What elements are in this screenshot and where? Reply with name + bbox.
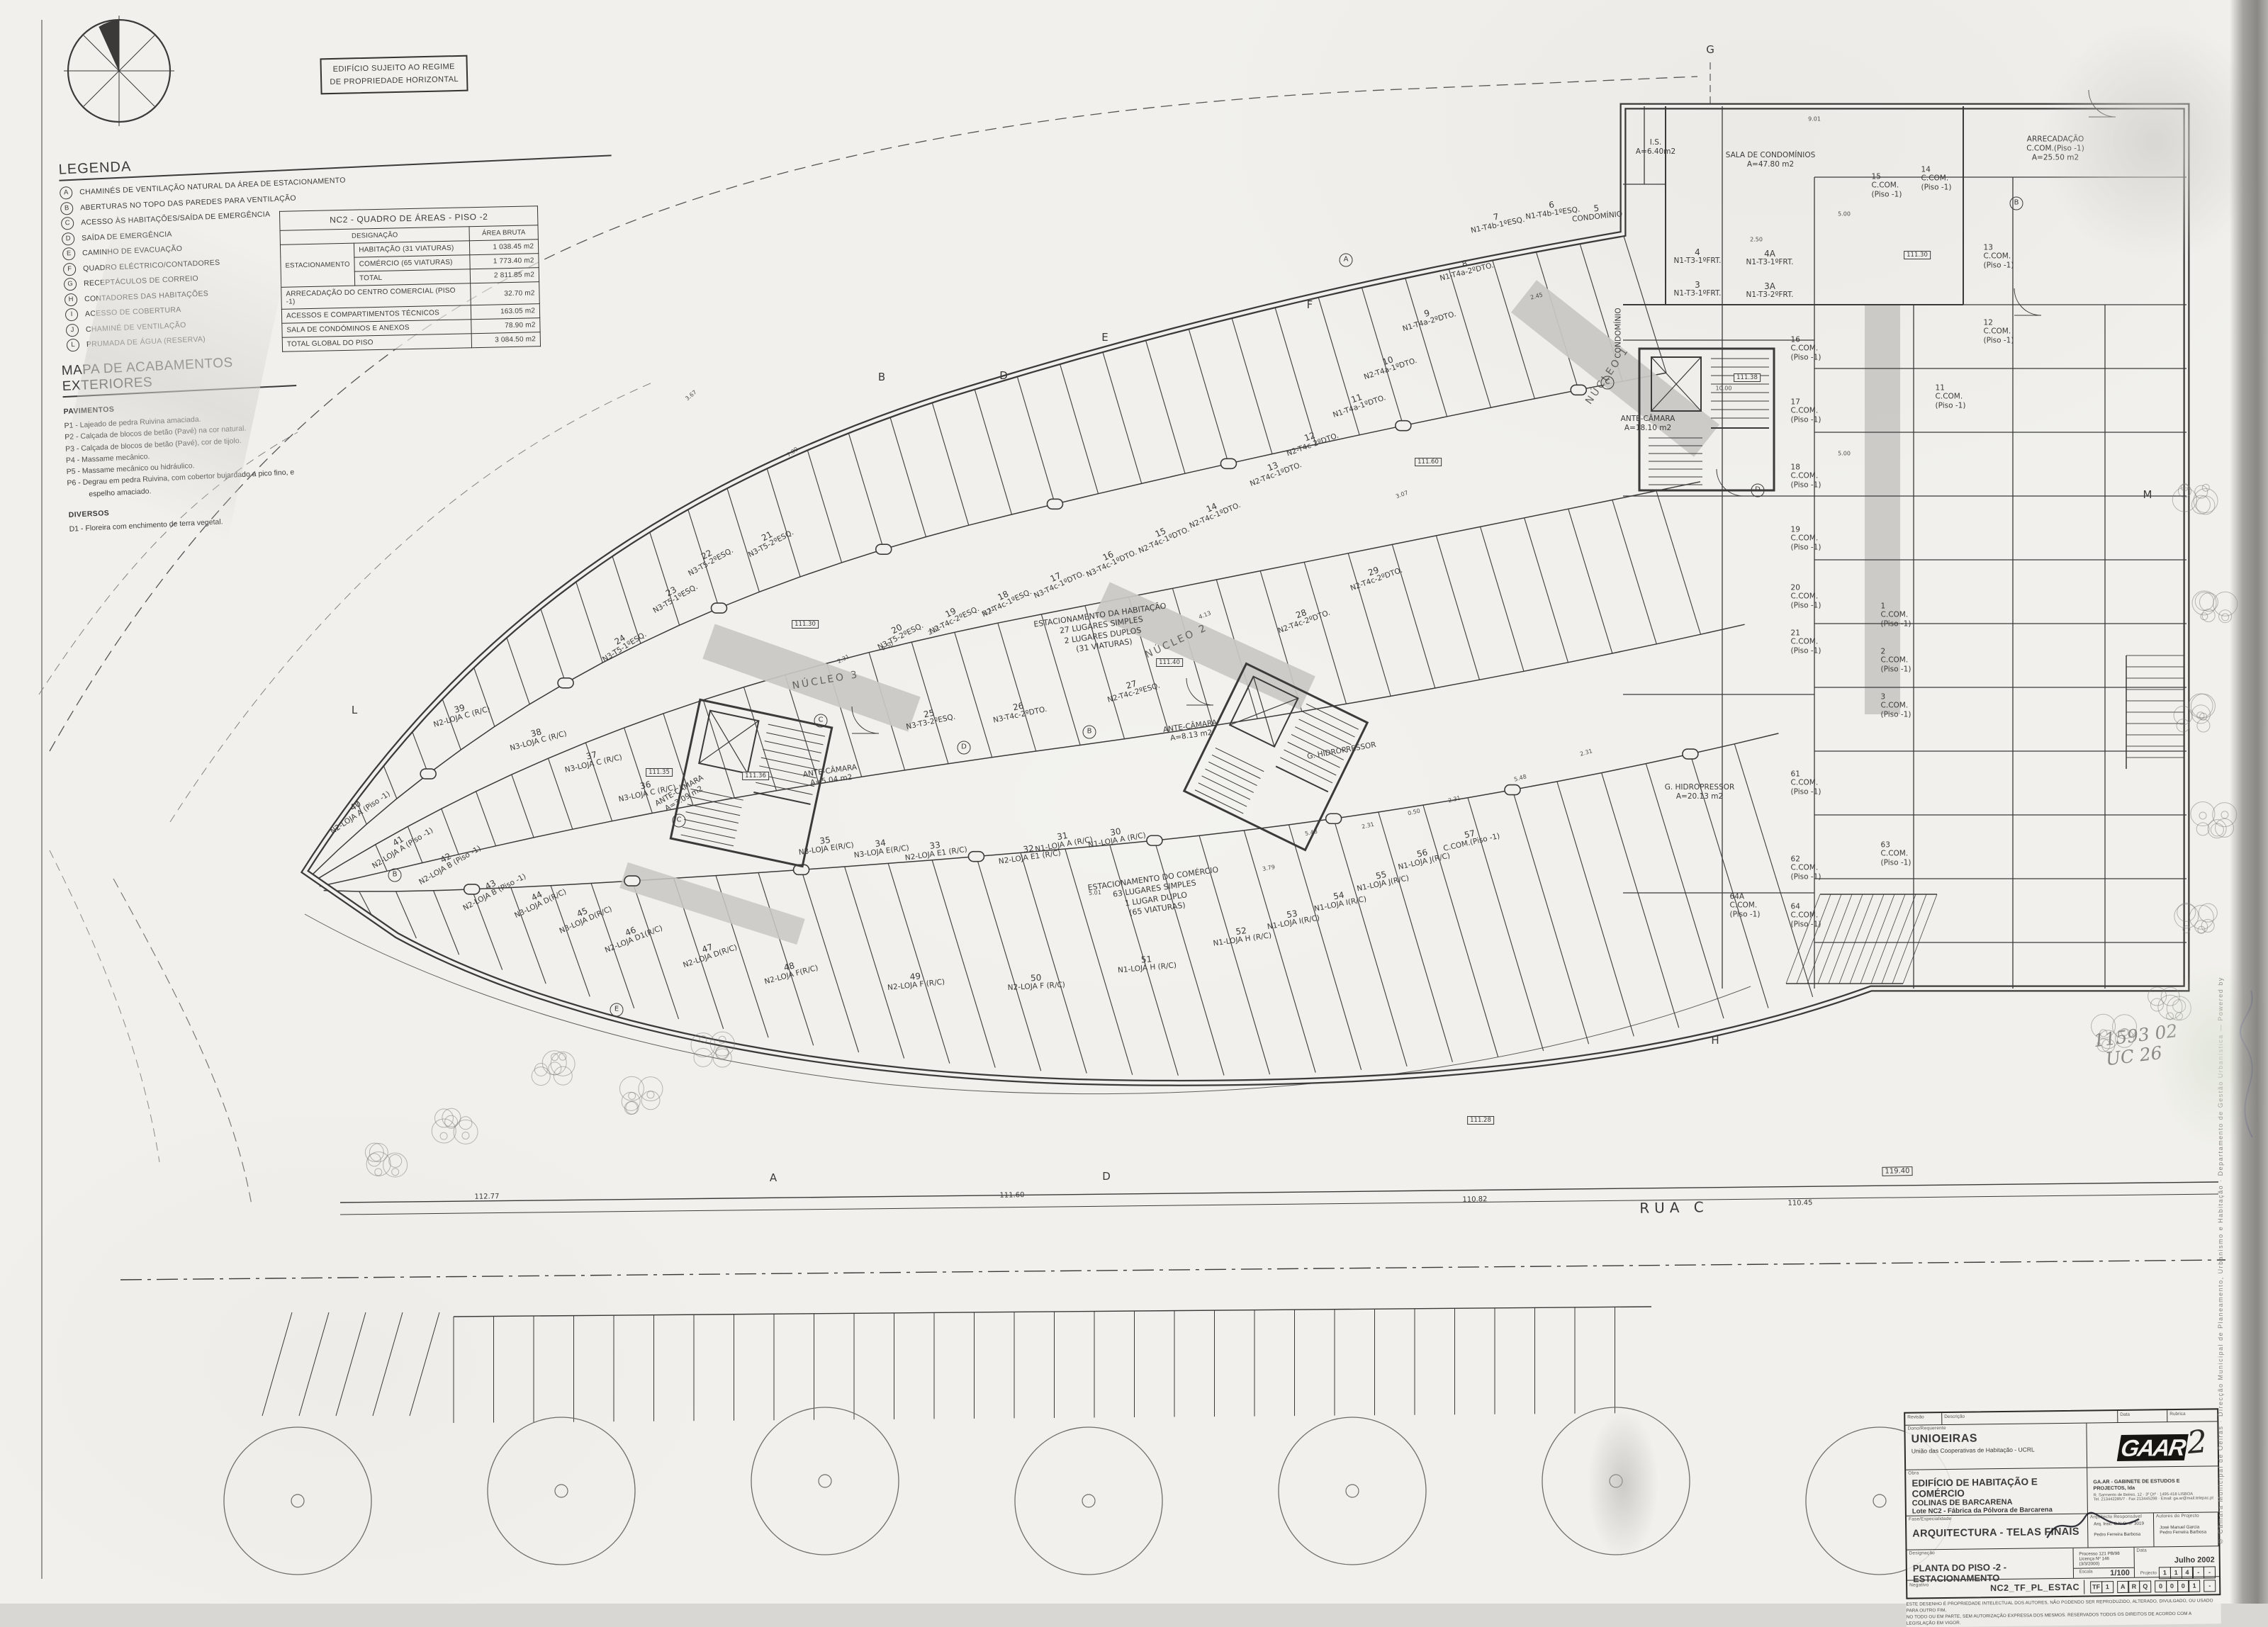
storage-text: C.COM. [1791,592,1821,601]
data-caption: Data [2136,1548,2147,1553]
storage-text: C.COM. [1791,472,1821,480]
stall-label: 41N2-LOJA A (Piso -1) [366,819,435,871]
room-text: C.COM.(Piso -1) [2026,144,2084,153]
legend-text: ACESSO DE COBERTURA [85,305,181,318]
legend-key: E [62,247,76,261]
dimension-label: 2.50 [1750,237,1763,243]
storage-number: 19 [1791,525,1821,534]
dimension-label: 5.48 [1304,828,1318,838]
dimension-label: 5.00 [1838,451,1851,457]
stall-label: 47N2-LOJA D(R/C) [679,935,738,970]
storage-label: 12C.COM.(Piso -1) [1984,318,2014,344]
storage-text: C.COM. [1791,344,1821,353]
legend-key: F [63,262,77,276]
stall-label: 24N3-T5-1ºESQ. [597,623,649,664]
dimension-label: 9.01 [1808,116,1821,123]
design-cell: Designação PLANTA DO PISO -2 - ESTACIONA… [1907,1548,2074,1580]
table-cell: 1 773.40 m2 [470,254,539,269]
stall-label: 32N2-LOJA E1 (R/C) [997,840,1061,866]
stall-number: 3 [1674,281,1722,290]
elevation-label: 111.35 [646,768,673,777]
firm-name: GA.AR - GABINETE DE ESTUDOS E PROJECTOS,… [2093,1477,2213,1491]
storage-text: C.COM. [1881,611,1911,619]
stall-label: 45N3-LOJA D(R/C) [555,897,614,936]
legend-key: J [66,323,79,337]
legend-ref-marker: C [673,814,686,828]
stall-unit: N1-T3-1ºFRT. [1674,290,1722,298]
licenca: Licença Nº 146 (3/3/2000) [2079,1556,2129,1567]
storage-text: C.COM. [1984,252,2014,261]
storage-label: 17C.COM.(Piso -1) [1791,398,1821,424]
fase-versao-boxes: TF1 [2090,1581,2113,1593]
especialidade-boxes: ARQ [2117,1580,2151,1593]
sheet: 5CONDOMÍNIO6N1-T4b-1ºESQ.7N1-T4b-1ºESQ.8… [0,0,2268,1604]
dimension-label: 2.31 [1579,748,1593,758]
negativo-value: NC2_TF_PL_ESTAC [1913,1582,2079,1594]
storage-number: 62 [1791,855,1821,863]
dimension-label: 2.31 [1361,821,1374,831]
grid-marker: A [770,1171,777,1184]
legend-key: A [60,186,73,200]
stall-label: 4N1-T3-1ºFRT. [1674,248,1722,265]
gaar-logo: GAAR [2117,1435,2189,1459]
legend-key: L [67,339,80,352]
stall-label: 48N2-LOJA F(R/C) [761,955,819,986]
room-label: SALA DE CONDOMÍNIOSA=47.80 m2 [1726,151,1816,169]
storage-text: C.COM. [1936,393,1966,401]
revision-col: Revisão [1905,1413,1942,1425]
room-label: G. HIDROPRESSOR [1306,741,1376,762]
grid-marker: L [352,704,357,716]
stall-label: 21N3-T5-2ºESQ. [743,521,795,560]
storage-text: (Piso -1) [1791,415,1821,424]
storage-label: 15C.COM.(Piso -1) [1872,172,1902,198]
storage-text: (Piso -1) [1791,353,1821,361]
grid-marker: D [999,369,1008,382]
dimension-label: 2.31 [836,653,850,665]
storage-text: (Piso -1) [1791,601,1821,609]
grid-marker: B [878,371,885,383]
storage-number: 16 [1791,335,1821,344]
stall-label: 14N2-T4c-1ºDTO. [1185,493,1242,530]
firm-addr2: Tel. 213442285/7 · Fax 213445298 · Email… [2094,1496,2214,1502]
table-cell: 1 038.45 m2 [470,240,539,255]
stall-label: 13N2-T4c-1ºDTO. [1246,453,1303,488]
signature [2041,1505,2148,1549]
room-label: ANTE-CÂMARAA=5.04 m2 [802,763,859,789]
grid-marker: F [1307,298,1313,311]
storage-text: (Piso -1) [1791,872,1821,881]
storage-text: C.COM. [1791,638,1821,646]
gaar-logo-text: GAAR [2117,1434,2189,1460]
storage-text: C.COM. [1791,779,1821,787]
storage-label: 63C.COM.(Piso -1) [1881,840,1911,867]
storage-number: 20 [1791,583,1821,592]
regime-note: EDIFÍCIO SUJEITO AO REGIME DE PROPRIEDAD… [320,55,468,95]
storage-text: C.COM. [1881,850,1911,858]
elevation-label: 111.60 [1415,458,1442,466]
storage-label: 2C.COM.(Piso -1) [1881,647,1911,673]
stall-label: 38N3-LOJA C (R/C) [507,721,568,753]
storage-label: 1C.COM.(Piso -1) [1881,602,1911,628]
escala-value: 1/100 [2110,1569,2130,1577]
code-box: R [2128,1580,2140,1592]
dimension-label: 5.48 [1513,773,1527,782]
title-block-frame: RevisãoDescriçãoDataRubrica Dono/Requere… [1904,1408,2221,1599]
storage-text: (Piso -1) [1881,858,1911,867]
legend-ref-marker: D [958,741,971,755]
stall-number: 4 [1674,248,1722,257]
stall-number: 4A [1746,249,1794,259]
blue-pen-mark [2231,985,2268,1148]
storage-number: 15 [1872,172,1902,181]
stall-label: 37N3-LOJA C (R/C) [562,745,623,775]
legend-text: SAÍDA DE EMERGÊNCIA [82,230,172,242]
stall-label: 3N1-T3-1ºFRT. [1674,281,1722,298]
areas-table: NC2 - QUADRO DE ÁREAS - PISO -2DESIGNAÇÃ… [279,206,541,352]
code-box: 0 [2177,1580,2189,1592]
storage-label: 19C.COM.(Piso -1) [1791,525,1821,551]
room-text: I.S. [1636,138,1675,147]
data-cell: Data Julho 2002 Projecto 114-- [2134,1546,2219,1577]
storage-number: 1 [1881,602,1911,610]
stall-label: 11N1-T4a-1ºDTO. [1329,385,1387,420]
table-cell: 2 811.85 m2 [470,268,539,283]
stall-label: 30N1-LOJA A (R/C) [1086,823,1146,850]
stall-label: 29N2-T4c-2ºDTO. [1347,558,1404,592]
storage-number: 63 [1881,840,1911,849]
handwritten-sheet-number: 2 [2186,1424,2208,1461]
stall-unit: N1-T3-1ºFRT. [1746,259,1794,267]
stall-label: 17N3-T4c-1ºDTO. [1029,562,1086,601]
storage-text: (Piso -1) [1791,480,1821,489]
road-elevation-label: 119.40 [1882,1166,1912,1176]
stall-label: 52N1-LOJA H (R/C) [1211,923,1272,947]
stall-label: 49N2-LOJA F (R/C) [886,969,945,992]
revision-col: Rubrica [2167,1409,2217,1421]
room-text: SALA DE CONDOMÍNIOS [1726,151,1816,160]
storage-number: 11 [1936,383,1966,392]
storage-number: 64 [1791,902,1821,911]
author-2: Pedro Ferreira Barbosa [2160,1529,2213,1535]
room-text: ANTE-CÂMARA [1621,415,1675,424]
stall-label: 7N1-T4b-1ºESQ. [1469,207,1526,235]
dimension-label: 10.00 [1716,385,1732,392]
dimension-label: 3.79 [1262,864,1275,872]
finishes-map: MAPA DE ACABAMENTOS EXTERIORES PAVIMENTO… [61,352,303,535]
elevation-label: 111.30 [792,620,819,629]
grid-marker: D [1102,1170,1111,1183]
stall-label: 16N3-T4c-1ºDTO. [1082,541,1138,580]
storage-number: 64A [1730,892,1761,901]
storage-text: (Piso -1) [1936,401,1966,410]
street-label: RUA C [1639,1198,1709,1217]
dimension-label: 3.67 [684,389,697,402]
code-box: 1 [2188,1580,2200,1592]
dimension-label: 7.00 [785,446,799,458]
storage-text: C.COM. [1881,702,1911,710]
room-label: ARRECADAÇÃOC.COM.(Piso -1)A=25.50 m2 [2026,135,2084,162]
code-box: 1 [2101,1581,2113,1593]
stall-label: 9N1-T4a-2ºDTO. [1399,302,1457,334]
code-box: - [2204,1580,2216,1592]
code-box: 0 [2155,1580,2167,1592]
regime-note-line2: DE PROPRIEDADE HORIZONTAL [323,73,465,89]
storage-label: 61C.COM.(Piso -1) [1791,770,1821,796]
legend-text: CHAMINÉ DE VENTILAÇÃO [86,320,186,333]
revision-col: Data [2118,1410,2167,1422]
table-cell: 32.70 m2 [471,282,540,305]
stall-label: 44N3-LOJA D(R/C) [510,880,568,921]
storage-text: C.COM. [1791,864,1821,872]
grid-marker: G [1706,43,1714,56]
legend-key: G [64,278,77,291]
room-text: G. HIDROPRESSOR [1306,741,1376,762]
storage-text: (Piso -1) [1791,646,1821,655]
municipal-margin-stamp: © Câmara Municipal de Oeiras · Direcção … [2217,510,2224,1545]
stall-label: 35N3-LOJA E(R/C) [797,833,854,857]
road-elevation-label: 112.77 [474,1193,499,1201]
storage-text: (Piso -1) [1881,710,1911,719]
stall-label: 4AN1-T3-1ºFRT. [1746,249,1794,266]
negativo-cell: Negativo NC2_TF_PL_ESTAC [1907,1580,2084,1597]
room-text: A=18.10 m2 [1621,424,1675,433]
grid-marker: E [1101,331,1108,344]
stall-label: 50N2-LOJA F (R/C) [1007,972,1065,992]
storage-number: 13 [1984,243,2014,252]
design-caption: Designação [1909,1550,1935,1555]
room-label: ANTE-CÂMARAA=8.13 m2 [1162,719,1219,745]
dimension-label: 0.50 [1407,808,1420,817]
storage-text: C.COM. [1791,911,1821,920]
storage-text: C.COM. [1881,656,1911,665]
legend-ref-marker: E [610,1003,624,1017]
stall-label: 25N3-T3-2ºESQ. [904,704,956,731]
stall-unit: N1-T3-1ºFRT. [1674,257,1722,266]
stall-label: 46N2-LOJA D1(R/C) [600,916,663,955]
legend-ref-marker: D [1751,484,1765,497]
authors-caption: Autores do Projecto [2156,1514,2199,1519]
stall-label: 40N2-LOJA A (Piso -1) [324,782,392,835]
storage-number: 21 [1791,629,1821,637]
stall-label: 15N2-T4c-1ºDTO. [1134,517,1191,556]
storage-text: (Piso -1) [1921,183,1952,191]
storage-label: 64C.COM.(Piso -1) [1791,902,1821,928]
storage-text: (Piso -1) [1791,787,1821,796]
code-box: 0 [2166,1580,2178,1592]
legend-text: PRUMADA DE ÁGUA (RESERVA) [86,335,206,349]
processo-cell: Processo 121 PB/98 Licença Nº 146 (3/3/2… [2073,1548,2135,1578]
table-cell: ÁREA BRUTA [469,225,538,241]
copyright-disclaimer: ESTE DESENHO É PROPRIEDADE INTELECTUAL D… [1906,1597,2221,1627]
legend-key: I [65,308,79,322]
legend-ref-marker: C [1601,376,1615,390]
legend-text: QUADRO ELÉCTRICO/CONTADORES [83,258,220,273]
title-block: RevisãoDescriçãoDataRubrica Dono/Requere… [1904,1408,2221,1627]
dimension-label: 2.31 [1447,794,1461,804]
grid-marker: H [1711,1034,1719,1047]
room-label: ANTE-CÂMARAA=18.10 m2 [1621,415,1675,433]
obra-line1: EDIFÍCIO DE HABITAÇÃO E COMÉRCIO [1911,1476,2082,1499]
storage-label: 62C.COM.(Piso -1) [1791,855,1821,881]
stall-label: 34N3-LOJA E(R/C) [852,835,909,860]
stall-label: 57C.COM.(Piso -1) [1441,823,1501,853]
stall-label: 8N1-T4a-2ºDTO. [1437,253,1495,283]
elevation-label: 111.38 [1734,373,1761,382]
client-name: UNIOEIRAS [1911,1431,2082,1446]
storage-number: 2 [1881,647,1911,655]
stall-label: 3AN1-T3-2ºFRT. [1746,282,1794,299]
data-value: Julho 2002 [2140,1555,2215,1565]
stall-label: 27N2-T4c-2ºESQ. [1104,673,1161,704]
stall-label: 33N2-LOJA E1 (R/C) [903,837,967,862]
stall-label: 26N3-T4c-2ºDTO. [991,697,1048,725]
stall-label: 39N2-LOJA C (R/C) [430,697,491,729]
room-label: I.S.A=6.40m2 [1636,138,1675,157]
code-box: A [2117,1580,2129,1592]
parking-count-note: ESTACIONAMENTO DO COMÉRCIO63 LUGARES SIM… [1087,865,1223,924]
storage-label: 64AC.COM.(Piso -1) [1730,892,1761,918]
table-cell: 78.90 m2 [471,318,540,334]
elevation-label: 111.40 [1156,658,1183,667]
stall-label: 51N1-LOJA H (R/C) [1117,952,1177,974]
dimension-label: 5.00 [1838,211,1851,218]
stall-unit: N1-T3-2ºFRT. [1746,291,1794,300]
storage-label: 18C.COM.(Piso -1) [1791,463,1821,489]
elevation-label: 111.30 [1904,251,1931,259]
fase-caption: Fase/Especialidade [1909,1516,1951,1522]
obra-caption: Obra [1908,1470,1919,1475]
revisao-box: - [2204,1580,2215,1592]
storage-text: C.COM. [1791,534,1821,543]
client-sub: União das Cooperativas de Habitação - UC… [1911,1446,2082,1455]
room-label: G. HIDROPRESSORA=20.13 m2 [1665,783,1735,801]
client-cell: Dono/Requerente UNIOEIRAS União das Coop… [1905,1424,2087,1470]
storage-text: (Piso -1) [1730,910,1761,918]
code-box: TF [2090,1581,2102,1593]
dimension-label: 5.01 [1089,889,1101,896]
road-elevation-label: 110.82 [1462,1195,1487,1204]
storage-text: C.COM. [1730,901,1761,910]
room-text: A=20.13 m2 [1665,792,1735,801]
storage-number: 14 [1921,165,1952,174]
storage-number: 17 [1791,398,1821,406]
legend-key: H [64,293,78,306]
storage-label: 11C.COM.(Piso -1) [1936,383,1966,410]
stall-unit: N2-LOJA F (R/C) [1007,981,1065,992]
desenho-num-boxes: 0001 [2155,1580,2199,1592]
road-elevation-label: 111.60 [999,1191,1024,1200]
storage-label: 21C.COM.(Piso -1) [1791,629,1821,655]
stall-label: 12N2-T4c-2ºDTO. [1283,423,1340,458]
room-text: A=6.40m2 [1636,147,1675,157]
legend-text: RECEPTÁCULOS DE CORREIO [84,274,198,288]
legend-ref-marker: C [814,714,828,728]
road-elevation-label: 110.45 [1787,1199,1812,1207]
code-box: Q [2139,1580,2151,1592]
finishes-items1: P1 - Lajeado de pedra Ruivina amaciada.P… [64,409,301,501]
revision-col: Descrição [1942,1411,2118,1424]
storage-number: 18 [1791,463,1821,471]
storage-label: 14C.COM.(Piso -1) [1921,165,1952,191]
dimension-label: 4.13 [1198,609,1212,620]
storage-number: 61 [1791,770,1821,778]
negativo-caption: Negativo [1909,1582,1929,1587]
legend-ref-marker: B [2010,197,2023,210]
stall-label: 53N1-LOJA I(R/C) [1265,906,1320,932]
storage-text: (Piso -1) [1791,543,1821,551]
stall-label: 10N2-T4a-1ºDTO. [1360,348,1418,381]
authors-cell: Autores do Projecto José Manuel Garcia P… [2154,1512,2219,1546]
room-text: G. HIDROPRESSOR [1665,783,1735,792]
legend-ref-marker: A [1340,254,1353,267]
stall-number: 3A [1746,282,1794,291]
projecto-caption: Projecto [2140,1570,2157,1575]
codes-cell: TF1 ARQ 0001 - [2084,1577,2219,1595]
elevation-label: 111.28 [1467,1116,1494,1125]
table-cell: 3 084.50 m2 [471,332,540,348]
stall-label: 42N2-LOJA B (Piso -1) [413,837,483,886]
storage-number: 3 [1881,692,1911,701]
storage-text: (Piso -1) [1791,920,1821,928]
storage-label: 13C.COM.(Piso -1) [1984,243,2014,269]
escala-caption: Escala [2079,1569,2093,1574]
storage-text: (Piso -1) [1872,190,1902,198]
storage-text: C.COM. [1921,174,1952,183]
legend-key: D [62,232,75,245]
storage-number: 12 [1984,318,2014,327]
grid-marker: M [2143,488,2152,501]
legend-ref-marker: B [388,869,402,882]
legend-key: C [61,217,74,230]
room-text: A=47.80 m2 [1726,160,1816,169]
client-caption: Dono/Requerente [1907,1426,1946,1431]
storage-text: (Piso -1) [1881,665,1911,673]
storage-label: 16C.COM.(Piso -1) [1791,335,1821,361]
dimension-label: 2.45 [1529,291,1543,300]
table-cell: ESTACIONAMENTO [280,243,354,287]
storage-text: C.COM. [1984,327,2014,336]
storage-text: (Piso -1) [1984,336,2014,344]
table-cell: 163.05 m2 [471,304,539,320]
areas-table-grid: NC2 - QUADRO DE ÁREAS - PISO -2DESIGNAÇÃ… [279,206,541,352]
room-text: ARRECADAÇÃO [2026,135,2084,144]
dimension-label: 3.07 [1395,490,1409,500]
storage-text: (Piso -1) [1984,261,2014,269]
storage-label: 20C.COM.(Piso -1) [1791,583,1821,609]
elevation-label: 111.36 [742,772,769,780]
storage-text: (Piso -1) [1881,619,1911,628]
stall-label: 28N2-T4c-2ºDTO. [1274,600,1332,635]
stall-label: 23N3-T5-1ºESQ. [647,575,699,615]
storage-text: C.COM. [1872,181,1902,190]
legend-text: CAMINHO DE EVACUAÇÃO [82,244,183,257]
legend-text: CONTADORES DAS HABITAÇÕES [84,289,209,303]
stall-label: 22N3-T5-2ºESQ. [683,539,735,578]
legend-ref-marker: B [1083,726,1096,739]
room-text: A=25.50 m2 [2026,154,2084,163]
nucleo-label: NÚCLEO 3 [792,669,860,692]
storage-label: 3C.COM.(Piso -1) [1881,692,1911,719]
storage-text: C.COM. [1791,407,1821,415]
legend-key: B [60,201,74,215]
